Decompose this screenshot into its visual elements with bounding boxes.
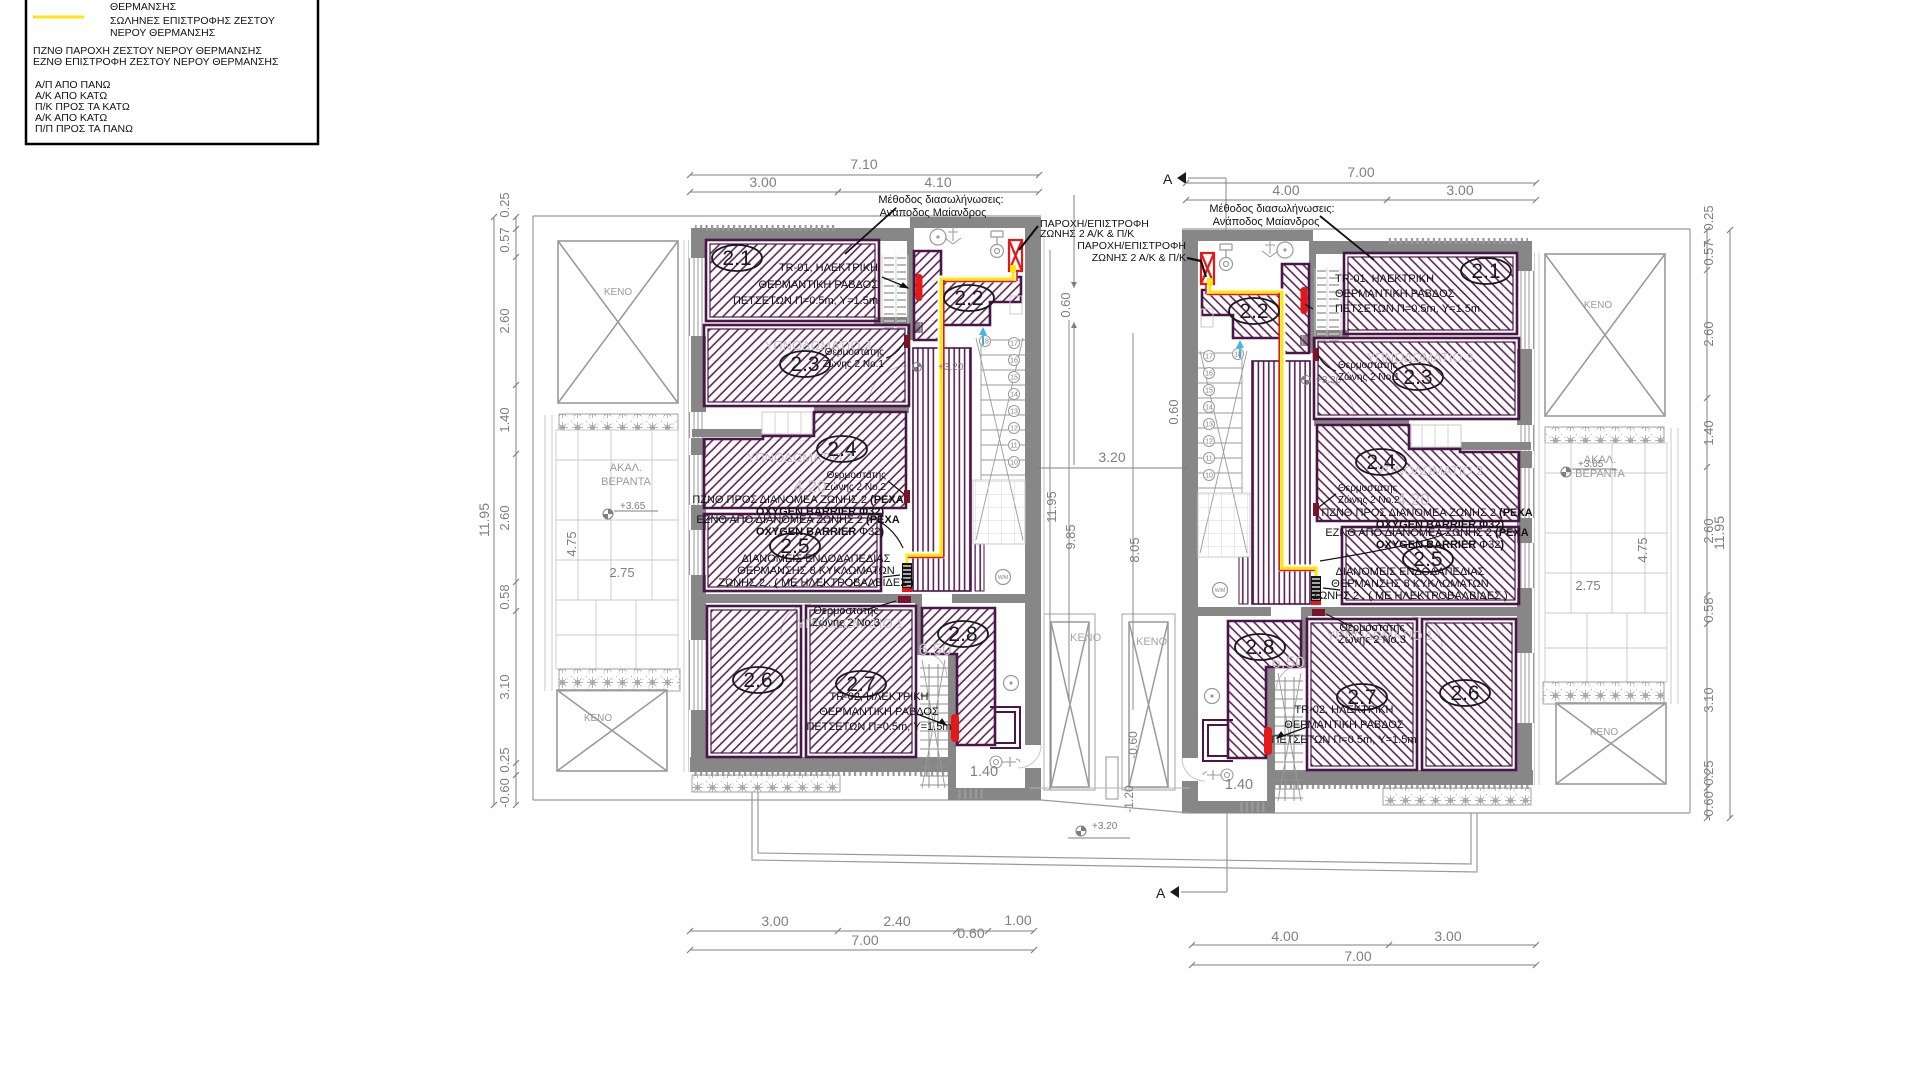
svg-text:Θερμοστάτης: Θερμοστάτης <box>827 469 887 481</box>
svg-text:3.00: 3.00 <box>749 174 776 190</box>
svg-text:2.2: 2.2 <box>1239 300 1268 323</box>
svg-text:0.60: 0.60 <box>1058 292 1073 317</box>
svg-text:1.40: 1.40 <box>497 407 512 432</box>
svg-text:1.40: 1.40 <box>1225 777 1253 793</box>
svg-text:ΣΩΛΗΝΕΣ ΕΠΙΣΤΡΟΦΗΣ ΖΕΣΤΟΥ: ΣΩΛΗΝΕΣ ΕΠΙΣΤΡΟΦΗΣ ΖΕΣΤΟΥ <box>110 15 275 27</box>
svg-text:0.60: 0.60 <box>957 925 984 941</box>
svg-text:ΖΩΝΗΣ 2 . ( ΜΕ ΗΛΕΚΤΡΟΒΑΛΒΙΔΕΣ: ΖΩΝΗΣ 2 . ( ΜΕ ΗΛΕΚΤΡΟΒΑΛΒΙΔΕΣ ) <box>718 577 913 589</box>
svg-text:ΠΖΝΘ ΠΡΟΣ ΔΙΑΝΟΜΕΑ ΖΩΝΗΣ 2 (ΡΕ: ΠΖΝΘ ΠΡΟΣ ΔΙΑΝΟΜΕΑ ΖΩΝΗΣ 2 (ΡΕΧΑ <box>692 494 903 506</box>
svg-text:1.40: 1.40 <box>970 764 998 780</box>
svg-text:1.40: 1.40 <box>1701 420 1716 445</box>
svg-text:7.00: 7.00 <box>851 932 878 948</box>
svg-text:4.10: 4.10 <box>924 174 951 190</box>
svg-text:Θερμοστάτης: Θερμοστάτης <box>813 605 878 617</box>
svg-text:TR-02, ΗΛΕΚΤΡΙΚΗ: TR-02, ΗΛΕΚΤΡΙΚΗ <box>1294 704 1393 716</box>
svg-text:11: 11 <box>1010 443 1017 450</box>
svg-text:Θερμοστάτης: Θερμοστάτης <box>825 346 885 358</box>
svg-text:TR-01, ΗΛΕΚΤΡΙΚΗ: TR-01, ΗΛΕΚΤΡΙΚΗ <box>1335 273 1434 285</box>
svg-text:TR-02, ΗΛΕΚΤΡΙΚΗ: TR-02, ΗΛΕΚΤΡΙΚΗ <box>829 691 928 703</box>
svg-text:2.60: 2.60 <box>1701 321 1716 346</box>
svg-text:Θερμοστάτης: Θερμοστάτης <box>1338 482 1398 494</box>
svg-text:ΠΕΤΣΕΤΩΝ Π=0.5m, Υ=1.5m: ΠΕΤΣΕΤΩΝ Π=0.5m, Υ=1.5m <box>1271 734 1416 746</box>
svg-text:ΒΕΡΑΝΤΑ: ΒΕΡΑΝΤΑ <box>601 476 651 488</box>
svg-text:KENO: KENO <box>1070 632 1102 644</box>
svg-text:0.25: 0.25 <box>497 192 512 217</box>
svg-text:7.00: 7.00 <box>1344 948 1371 964</box>
svg-text:Π/Π ΠΡΟΣ ΤΑ ΠΑΝΩ: Π/Π ΠΡΟΣ ΤΑ ΠΑΝΩ <box>35 123 133 135</box>
svg-text:17: 17 <box>1010 341 1018 348</box>
svg-text:KENO: KENO <box>604 287 633 298</box>
svg-text:KENO: KENO <box>1590 727 1619 738</box>
svg-text:2.60: 2.60 <box>1701 518 1716 543</box>
svg-text:3.10: 3.10 <box>497 674 512 699</box>
svg-text:0.25: 0.25 <box>1701 205 1716 230</box>
svg-text:A: A <box>1156 885 1166 901</box>
svg-text:ΕΖΝΘ ΕΠΙΣΤΡΟΦΗ ΖΕΣΤΟΥ ΝΕΡΟΥ ΘΕ: ΕΖΝΘ ΕΠΙΣΤΡΟΦΗ ΖΕΣΤΟΥ ΝΕΡΟΥ ΘΕΡΜΑΝΣΗΣ <box>33 56 279 68</box>
svg-text:ΠΕΤΣΕΤΩΝ Π=0.5m, Υ=1.5m: ΠΕΤΣΕΤΩΝ Π=0.5m, Υ=1.5m <box>1335 303 1480 315</box>
svg-text:ΖΩΝΗΣ 2 Α/Κ & Π/Κ: ΖΩΝΗΣ 2 Α/Κ & Π/Κ <box>1092 252 1186 264</box>
svg-text:15: 15 <box>1010 375 1018 382</box>
svg-text:ΝΕΡΟΥ ΘΕΡΜΑΝΣΗΣ: ΝΕΡΟΥ ΘΕΡΜΑΝΣΗΣ <box>110 27 216 39</box>
svg-text:ΑΚΑΛ.: ΑΚΑΛ. <box>610 462 642 474</box>
svg-text:0.60: 0.60 <box>1166 399 1181 424</box>
svg-text:Θερμοστάτης: Θερμοστάτης <box>1339 622 1404 634</box>
svg-text:ΘΕΡΜΑΝΣΗΣ 8 ΚΥΚΛΩΜΑΤΩΝ: ΘΕΡΜΑΝΣΗΣ 8 ΚΥΚΛΩΜΑΤΩΝ <box>1331 578 1488 590</box>
svg-text:2.3: 2.3 <box>1403 366 1432 389</box>
svg-text:ΘΕΡΜΑΝΤΙΚΗ ΡΑΒΔΟΣ: ΘΕΡΜΑΝΤΙΚΗ ΡΑΒΔΟΣ <box>759 279 879 291</box>
svg-text:ΘΕΡΜΑΝΤΙΚΗ ΡΑΒΔΟΣ: ΘΕΡΜΑΝΤΙΚΗ ΡΑΒΔΟΣ <box>1335 288 1455 300</box>
svg-text:KENO: KENO <box>1584 300 1613 311</box>
svg-text:18: 18 <box>981 339 989 346</box>
svg-text:7.10: 7.10 <box>850 156 877 172</box>
svg-text:ΖΩΝΗΣ 2 . ( ΜΕ ΗΛΕΚΤΡΟΒΑΛΒΙΔΕΣ: ΖΩΝΗΣ 2 . ( ΜΕ ΗΛΕΚΤΡΟΒΑΛΒΙΔΕΣ ) <box>1312 590 1507 602</box>
svg-text:Ζώνης 2 Νο.3: Ζώνης 2 Νο.3 <box>1338 634 1406 646</box>
svg-text:10: 10 <box>1010 460 1018 467</box>
svg-text:11.95: 11.95 <box>1044 491 1059 523</box>
svg-text:18: 18 <box>1234 352 1242 359</box>
svg-text:ΠΕΤΣΕΤΩΝ Π=0.5m, Υ=1.5m: ΠΕΤΣΕΤΩΝ Π=0.5m, Υ=1.5m <box>806 721 951 733</box>
svg-text:2.4: 2.4 <box>827 438 857 461</box>
svg-text:2.2: 2.2 <box>954 287 983 310</box>
svg-text:0.58: 0.58 <box>497 584 512 609</box>
svg-text:3.10: 3.10 <box>1701 687 1716 712</box>
svg-text:9.85: 9.85 <box>1063 524 1078 549</box>
svg-text:12: 12 <box>1205 439 1213 446</box>
svg-text:-0.60: -0.60 <box>497 778 512 808</box>
svg-text:2.6: 2.6 <box>1450 682 1479 705</box>
svg-text:0.25: 0.25 <box>1701 760 1716 785</box>
svg-text:2.3: 2.3 <box>790 353 819 376</box>
svg-text:3.00: 3.00 <box>761 913 788 929</box>
svg-text:2.8: 2.8 <box>1245 636 1274 659</box>
svg-text:0.25: 0.25 <box>497 747 512 772</box>
svg-text:ΕΖΝΘ ΑΠΟ ΔΙΑΝΟΜΕΑ ΖΩΝΗΣ 2 (ΡΕΧ: ΕΖΝΘ ΑΠΟ ΔΙΑΝΟΜΕΑ ΖΩΝΗΣ 2 (ΡΕΧΑ <box>696 514 899 526</box>
svg-text:ΠΖΝΘ ΠΡΟΣ ΔΙΑΝΟΜΕΑ ΖΩΝΗΣ 2 (ΡΕ: ΠΖΝΘ ΠΡΟΣ ΔΙΑΝΟΜΕΑ ΖΩΝΗΣ 2 (ΡΕΧΑ <box>1321 507 1532 519</box>
svg-text:2.4: 2.4 <box>1366 451 1396 474</box>
svg-text:4.75: 4.75 <box>1635 537 1650 562</box>
svg-text:Θερμοστάτης: Θερμοστάτης <box>1338 359 1398 371</box>
svg-text:W/M: W/M <box>1215 588 1225 594</box>
svg-text:+3.20: +3.20 <box>1092 821 1118 832</box>
svg-text:11.95: 11.95 <box>476 503 492 537</box>
svg-text:17: 17 <box>1205 354 1213 361</box>
svg-text:ΕΖΝΘ ΑΠΟ ΔΙΑΝΟΜΕΑ ΖΩΝΗΣ 2 (ΡΕΧ: ΕΖΝΘ ΑΠΟ ΔΙΑΝΟΜΕΑ ΖΩΝΗΣ 2 (ΡΕΧΑ <box>1325 527 1528 539</box>
svg-text:13: 13 <box>1205 422 1213 429</box>
svg-text:-0.60: -0.60 <box>1126 731 1140 759</box>
svg-text:2.1: 2.1 <box>722 247 751 270</box>
svg-text:16: 16 <box>1205 371 1213 378</box>
svg-text:2.8: 2.8 <box>948 623 977 646</box>
svg-text:14: 14 <box>1010 392 1018 399</box>
svg-text:1.00: 1.00 <box>1004 912 1031 928</box>
svg-text:3.00: 3.00 <box>1434 928 1461 944</box>
svg-text:Ζώνης 2 Νο.1: Ζώνης 2 Νο.1 <box>1338 371 1400 383</box>
svg-text:+3.20: +3.20 <box>938 362 964 373</box>
svg-text:ΠΕΤΣΕΤΩΝ Π=0.5m, Υ=1.5m: ΠΕΤΣΕΤΩΝ Π=0.5m, Υ=1.5m <box>733 295 878 307</box>
svg-text:15: 15 <box>1205 388 1213 395</box>
svg-text:+3.65: +3.65 <box>620 501 646 512</box>
svg-text:14: 14 <box>1205 405 1213 412</box>
svg-text:2.1: 2.1 <box>1471 260 1500 283</box>
svg-text:KENO: KENO <box>1136 636 1168 648</box>
svg-text:ΠΑΡΟΧΗ/ΕΠΙΣΤΡΟΦΗ: ΠΑΡΟΧΗ/ΕΠΙΣΤΡΟΦΗ <box>1077 240 1186 252</box>
svg-text:16: 16 <box>1010 358 1018 365</box>
svg-text:4.00: 4.00 <box>1272 182 1299 198</box>
svg-text:Μέθοδος διασωλήνωσεις:: Μέθοδος διασωλήνωσεις: <box>878 194 1003 206</box>
svg-text:ΔΙΑΝΟΜΕΙΣ ΕΝΔΟΔΑΠΕΔΙΑΣ: ΔΙΑΝΟΜΕΙΣ ΕΝΔΟΔΑΠΕΔΙΑΣ <box>1336 566 1485 578</box>
svg-text:7.00: 7.00 <box>1347 164 1374 180</box>
svg-text:Ζώνης 2 Νο.2: Ζώνης 2 Νο.2 <box>1338 494 1400 506</box>
svg-text:13: 13 <box>1010 409 1018 416</box>
svg-text:0.57: 0.57 <box>1701 240 1716 265</box>
svg-text:Ζώνης 2 Νο.1: Ζώνης 2 Νο.1 <box>822 358 884 370</box>
svg-text:Ζώνης 2 Νο.3: Ζώνης 2 Νο.3 <box>812 617 880 629</box>
svg-text:Ζώνης 2 Νο.2: Ζώνης 2 Νο.2 <box>824 481 886 493</box>
svg-text:4.00: 4.00 <box>1271 928 1298 944</box>
svg-text:3.20: 3.20 <box>1098 449 1125 465</box>
svg-text:2.75: 2.75 <box>1575 578 1600 593</box>
svg-text:OXYGEN BARRIER Φ32): OXYGEN BARRIER Φ32) <box>756 526 884 538</box>
svg-text:+3.65: +3.65 <box>1578 459 1604 470</box>
svg-text:0.58: 0.58 <box>1701 597 1716 622</box>
svg-text:2.40: 2.40 <box>883 913 910 929</box>
svg-text:ΘΕΡΜΑΝΣΗΣ: ΘΕΡΜΑΝΣΗΣ <box>110 1 177 13</box>
svg-text:Ανάποδος Μαίανδρος: Ανάποδος Μαίανδρος <box>1213 216 1320 228</box>
svg-text:OXYGEN BARRIER Φ32): OXYGEN BARRIER Φ32) <box>1376 539 1504 551</box>
svg-text:2.6: 2.6 <box>743 669 772 692</box>
svg-text:4.75: 4.75 <box>564 531 579 556</box>
svg-text:2.60: 2.60 <box>497 308 512 333</box>
svg-text:Μέθοδος διασωλήνωσεις:: Μέθοδος διασωλήνωσεις: <box>1209 203 1334 215</box>
svg-text:ΔΙΑΝΟΜΕΙΣ ΕΝΔΟΔΑΠΕΔΙΑΣ: ΔΙΑΝΟΜΕΙΣ ΕΝΔΟΔΑΠΕΔΙΑΣ <box>742 553 891 565</box>
svg-text:3.00: 3.00 <box>1446 182 1473 198</box>
svg-text:W/M: W/M <box>998 575 1008 581</box>
svg-text:12: 12 <box>1010 426 1018 433</box>
svg-text:10: 10 <box>1205 473 1213 480</box>
svg-text:2.75: 2.75 <box>609 565 634 580</box>
svg-text:KENO: KENO <box>584 713 613 724</box>
svg-text:ΖΩΝΗΣ 2 Α/Κ & Π/Κ: ΖΩΝΗΣ 2 Α/Κ & Π/Κ <box>1040 228 1134 240</box>
svg-text:TR-01, ΗΛΕΚΤΡΙΚΗ: TR-01, ΗΛΕΚΤΡΙΚΗ <box>779 262 878 274</box>
svg-text:8.05: 8.05 <box>1127 537 1142 562</box>
svg-text:2.60: 2.60 <box>497 505 512 530</box>
svg-text:ΘΕΡΜΑΝΣΗΣ 8 ΚΥΚΛΩΜΑΤΩΝ: ΘΕΡΜΑΝΣΗΣ 8 ΚΥΚΛΩΜΑΤΩΝ <box>737 565 894 577</box>
svg-text:11: 11 <box>1205 456 1212 463</box>
svg-text:A: A <box>1163 171 1173 187</box>
svg-text:0.57: 0.57 <box>497 227 512 252</box>
